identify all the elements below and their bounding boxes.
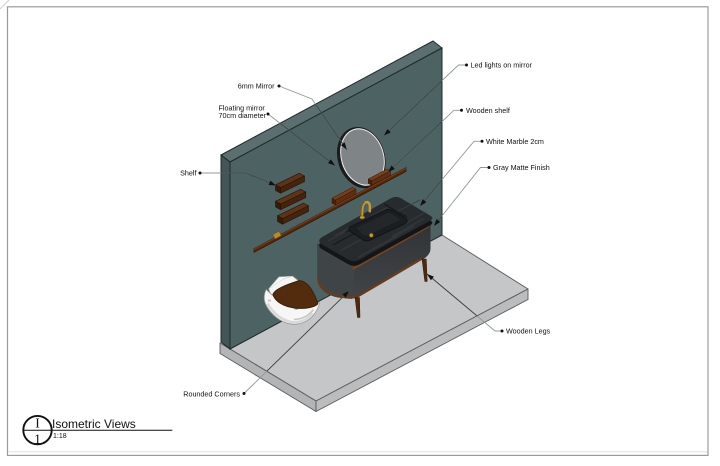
svg-text:Rounded Corners: Rounded Corners: [183, 390, 240, 399]
svg-text:1: 1: [34, 431, 41, 446]
svg-text:Wooden shelf: Wooden shelf: [466, 106, 510, 115]
svg-text:Led lights on mirror: Led lights on mirror: [471, 61, 533, 70]
svg-text:White Marble 2cm: White Marble 2cm: [486, 137, 544, 146]
svg-text:70cm diameter: 70cm diameter: [219, 111, 267, 120]
svg-text:Gray Matte Finish: Gray Matte Finish: [493, 163, 550, 172]
svg-text:I: I: [35, 416, 40, 431]
svg-text:1:18: 1:18: [53, 433, 67, 440]
svg-text:Isometric Views: Isometric Views: [52, 417, 136, 431]
svg-text:6mm Mirror: 6mm Mirror: [238, 82, 275, 91]
svg-text:Wooden Legs: Wooden Legs: [506, 327, 551, 336]
svg-text:Shelf: Shelf: [180, 169, 196, 178]
